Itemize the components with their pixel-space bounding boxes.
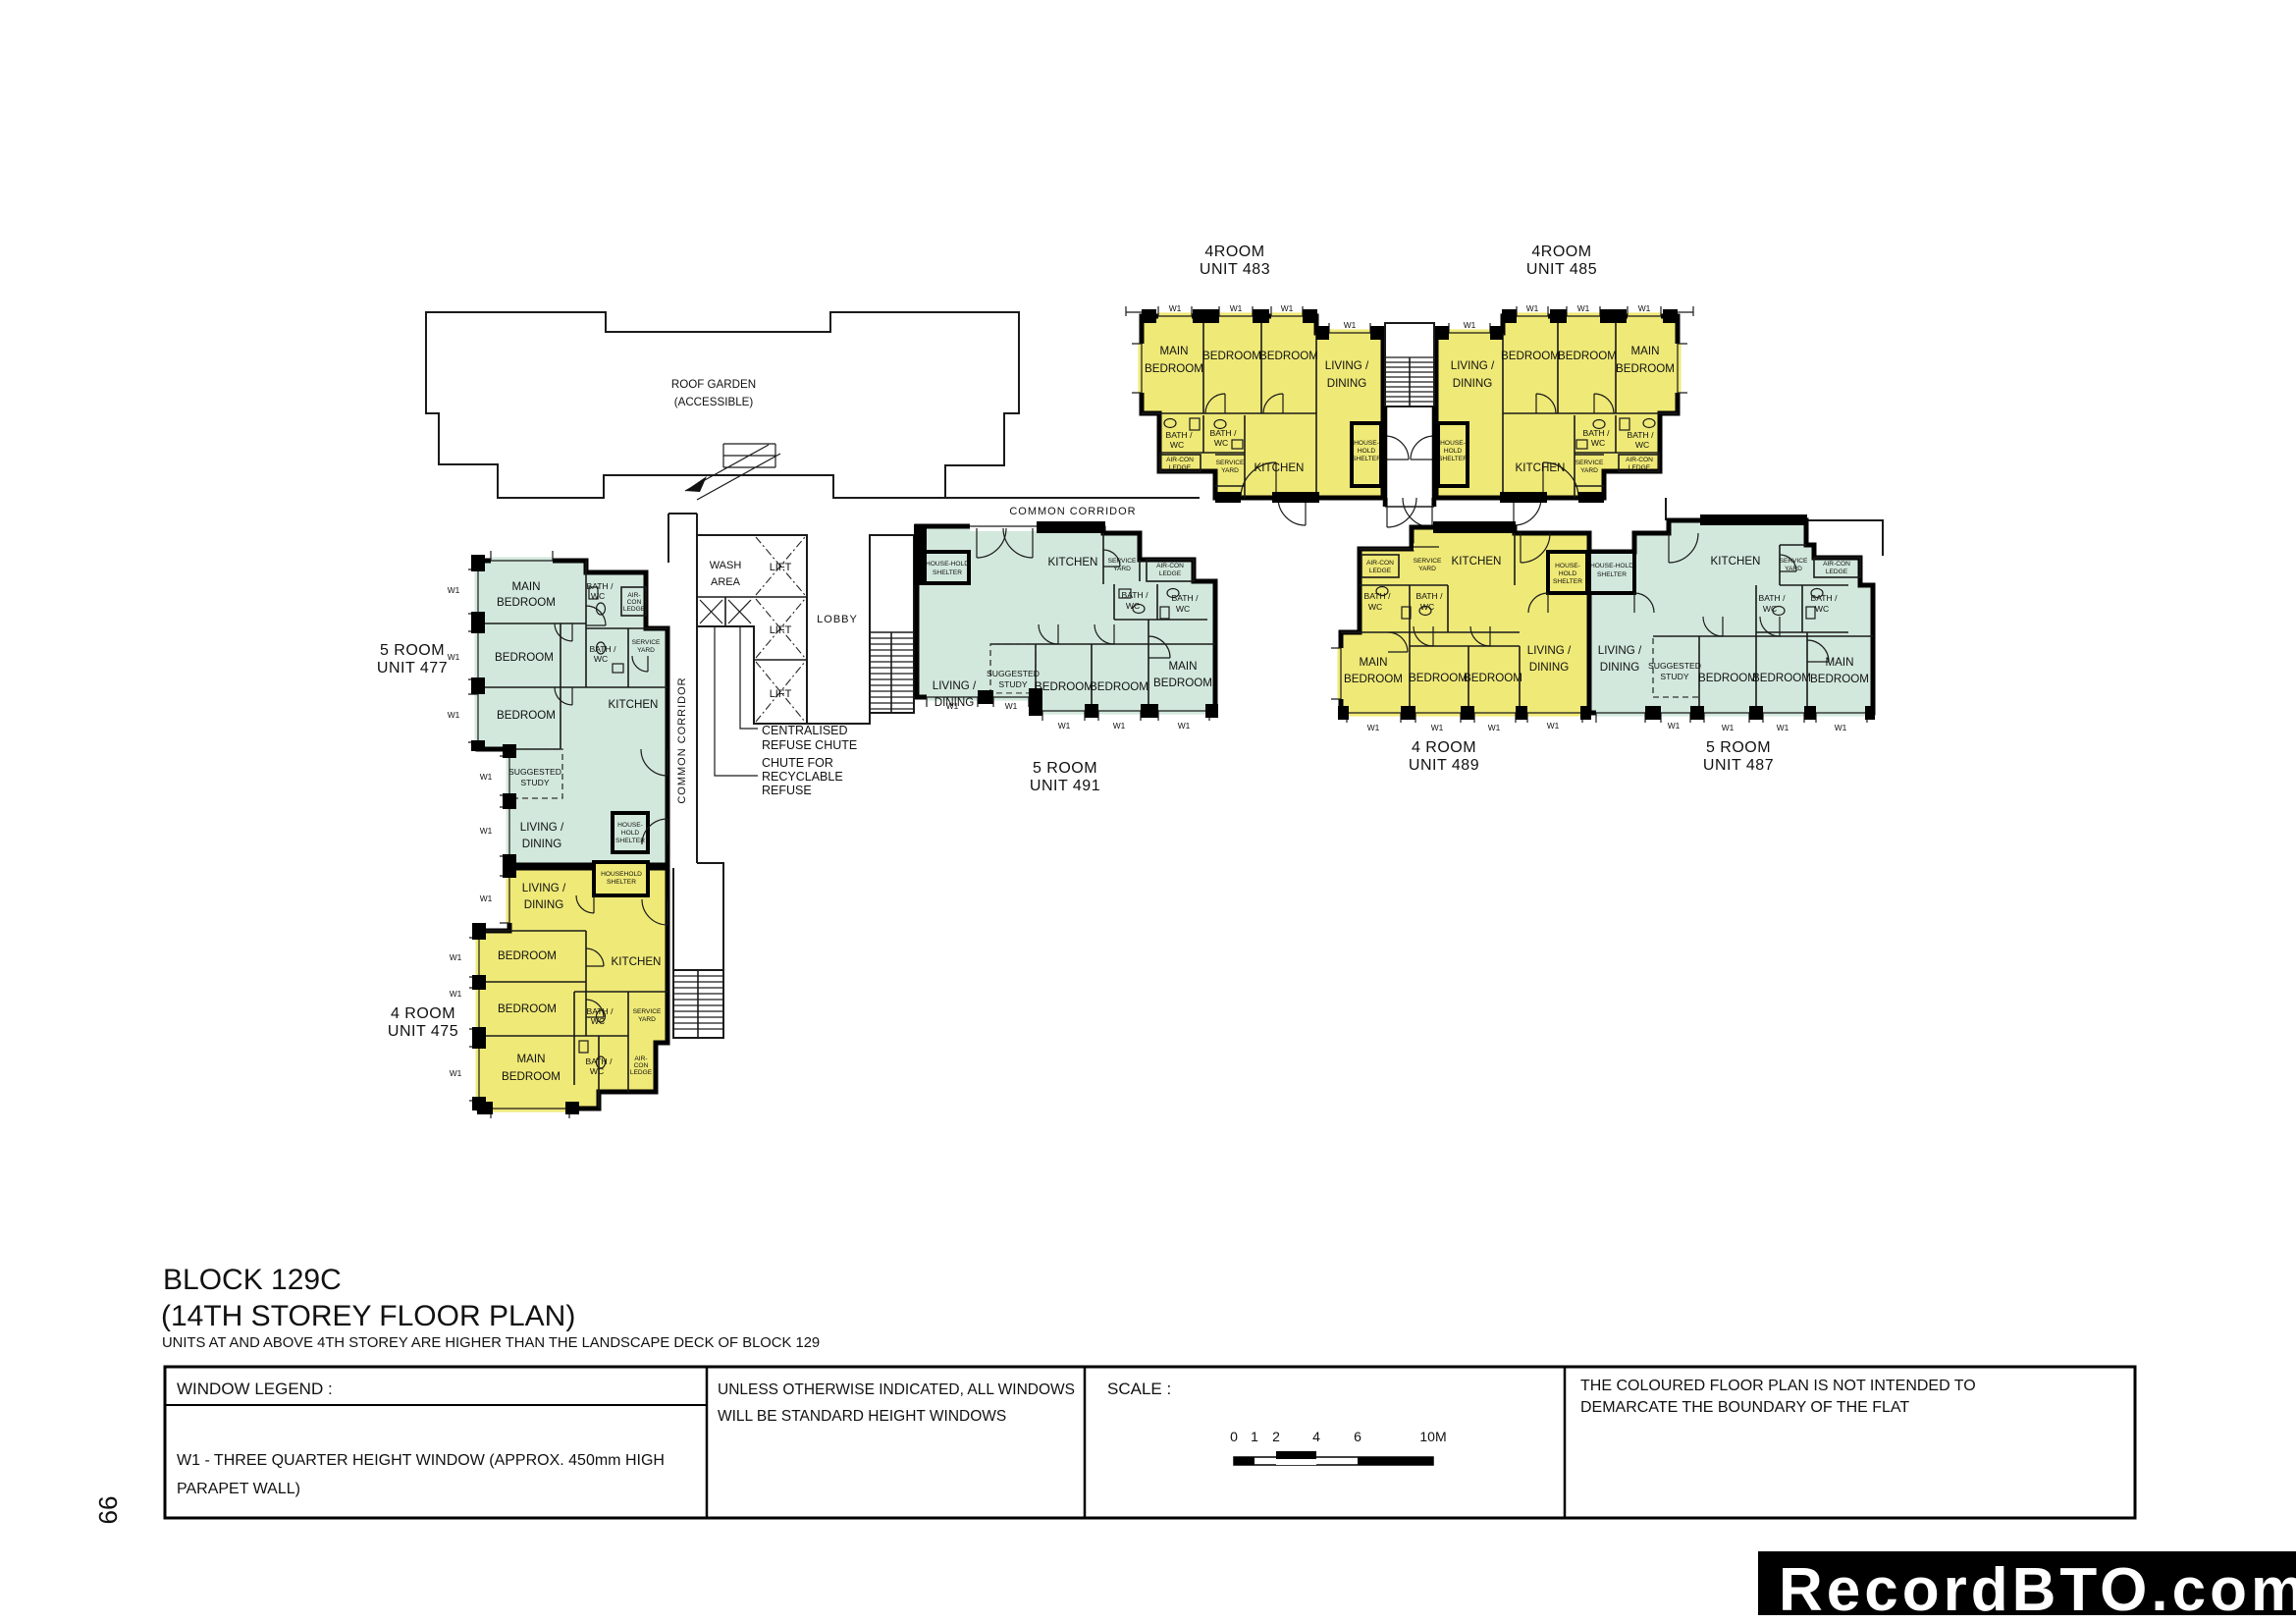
svg-text:LIVING /: LIVING / [1325,359,1369,372]
svg-text:W1: W1 [450,989,462,999]
svg-text:BEDROOM: BEDROOM [495,651,554,664]
svg-text:W1: W1 [1488,723,1501,732]
svg-text:SERVICE: SERVICE [632,639,661,646]
svg-text:BATH /: BATH / [1363,591,1391,601]
svg-text:DINING: DINING [1600,661,1640,674]
svg-text:WC: WC [594,654,608,664]
svg-text:LIFT: LIFT [770,562,792,573]
svg-text:YARD: YARD [1785,566,1802,572]
svg-text:AIR-CON: AIR-CON [1626,457,1653,463]
svg-text:BEDROOM: BEDROOM [497,596,556,609]
svg-text:SERVICE: SERVICE [1414,558,1442,565]
svg-text:BATH /: BATH / [586,581,614,591]
svg-text:WC: WC [1815,604,1829,614]
svg-text:W1: W1 [450,952,462,962]
svg-text:BEDROOM: BEDROOM [1810,673,1869,685]
svg-text:UNIT 485: UNIT 485 [1526,261,1597,278]
svg-text:(14TH STOREY FLOOR PLAN): (14TH STOREY FLOOR PLAN) [161,1300,575,1332]
svg-text:CHUTE FOR: CHUTE FOR [762,756,833,770]
svg-text:UNIT 477: UNIT 477 [377,660,448,677]
svg-text:LEDGE: LEDGE [1629,464,1651,471]
svg-text:HOUSE-: HOUSE- [617,822,643,829]
svg-text:WC: WC [1368,602,1382,612]
svg-text:4ROOM: 4ROOM [1204,244,1264,260]
svg-text:MAIN: MAIN [1169,660,1198,673]
svg-text:LIVING /: LIVING / [933,679,977,692]
svg-text:W1: W1 [450,1068,462,1078]
svg-text:HOUSE-HOLD: HOUSE-HOLD [926,561,969,568]
svg-text:6: 6 [1354,1429,1362,1444]
svg-text:THE COLOURED FLOOR PLAN IS NOT: THE COLOURED FLOOR PLAN IS NOT INTENDED … [1580,1378,1976,1394]
svg-text:5 ROOM: 5 ROOM [1033,760,1097,777]
svg-text:SERVICE: SERVICE [1780,558,1808,565]
svg-text:BEDROOM: BEDROOM [1558,350,1617,362]
svg-text:SUGGESTED: SUGGESTED [508,767,561,777]
svg-text:HOLD: HOLD [1358,448,1376,455]
svg-text:W1: W1 [1367,723,1380,732]
svg-text:HOLD: HOLD [621,830,640,837]
svg-text:UNIT 489: UNIT 489 [1409,757,1479,774]
svg-text:66: 66 [93,1496,123,1525]
svg-text:AIR-CON: AIR-CON [1366,560,1394,567]
svg-text:BEDROOM: BEDROOM [1752,672,1811,684]
svg-text:REFUSE: REFUSE [762,784,812,797]
svg-text:UNITS AT AND ABOVE 4TH STOREY: UNITS AT AND ABOVE 4TH STOREY ARE HIGHER… [162,1335,820,1351]
svg-text:0: 0 [1230,1429,1238,1444]
svg-text:LEDGE: LEDGE [1169,464,1192,471]
svg-text:1: 1 [1251,1429,1258,1444]
svg-text:PARAPET WALL): PARAPET WALL) [177,1481,300,1497]
svg-text:AIR-: AIR- [634,1056,647,1062]
svg-text:AIR-CON: AIR-CON [1166,457,1194,463]
svg-text:DEMARCATE THE BOUNDARY OF THE: DEMARCATE THE BOUNDARY OF THE FLAT [1580,1399,1909,1416]
svg-text:HOLD: HOLD [1444,448,1463,455]
svg-text:BEDROOM: BEDROOM [498,1002,557,1015]
svg-text:WASH: WASH [710,560,742,571]
svg-text:YARD: YARD [637,647,655,654]
svg-text:SUGGESTED: SUGGESTED [987,669,1040,678]
svg-text:DINING: DINING [1529,661,1570,674]
svg-text:DINING: DINING [1327,377,1367,390]
svg-text:YARD: YARD [1113,566,1131,572]
svg-text:W1: W1 [1777,723,1789,732]
svg-text:BEDROOM: BEDROOM [1145,362,1203,375]
svg-text:SHELTER: SHELTER [933,569,962,576]
svg-text:W1: W1 [480,893,493,903]
svg-text:RECYCLABLE: RECYCLABLE [762,770,843,784]
svg-text:LIFT: LIFT [770,624,792,636]
svg-text:W1: W1 [448,585,460,595]
svg-text:BEDROOM: BEDROOM [498,949,557,962]
svg-text:LEDGE: LEDGE [1159,570,1182,577]
svg-text:BATH /: BATH / [586,1006,614,1016]
svg-text:LIVING /: LIVING / [1598,644,1642,657]
svg-text:CENTRALISED: CENTRALISED [762,724,848,737]
svg-text:SCALE :: SCALE : [1107,1380,1171,1398]
svg-text:W1: W1 [1638,303,1651,313]
svg-text:LOBBY: LOBBY [817,614,858,625]
svg-text:BEDROOM: BEDROOM [1409,672,1468,684]
svg-text:BEDROOM: BEDROOM [1344,673,1403,685]
svg-text:WC: WC [1176,604,1190,614]
svg-text:W1: W1 [1526,303,1539,313]
svg-text:BEDROOM: BEDROOM [1202,350,1261,362]
svg-text:BATH /: BATH / [1582,428,1610,438]
svg-text:SHELTER: SHELTER [1597,571,1627,578]
svg-text:W1: W1 [1113,721,1126,731]
svg-text:5 ROOM: 5 ROOM [1706,739,1771,756]
svg-text:LIVING /: LIVING / [522,882,566,894]
svg-text:W1: W1 [1169,303,1182,313]
svg-text:COMMON CORRIDOR: COMMON CORRIDOR [676,677,688,803]
svg-text:WILL BE STANDARD HEIGHT WINDOW: WILL BE STANDARD HEIGHT WINDOWS [718,1408,1006,1425]
svg-text:CON: CON [634,1062,649,1069]
svg-text:W1: W1 [1281,303,1294,313]
svg-text:SHELTER: SHELTER [1553,578,1582,585]
svg-text:BEDROOM: BEDROOM [1464,672,1522,684]
svg-text:BEDROOM: BEDROOM [1501,350,1560,362]
svg-text:YARD: YARD [1221,467,1239,474]
svg-text:4: 4 [1312,1429,1320,1444]
svg-text:W1: W1 [480,772,493,782]
svg-text:WC: WC [590,1066,604,1076]
svg-text:W1: W1 [448,710,460,720]
svg-text:KITCHEN: KITCHEN [1048,556,1098,568]
svg-text:BEDROOM: BEDROOM [1616,362,1675,375]
svg-text:HOUSE-: HOUSE- [1354,440,1379,447]
svg-text:UNIT 487: UNIT 487 [1703,757,1774,774]
svg-text:HOUSE-HOLD: HOUSE-HOLD [1590,563,1633,569]
svg-text:MAIN: MAIN [517,1053,546,1065]
svg-text:SERVICE: SERVICE [1575,460,1604,466]
svg-text:SHELTER: SHELTER [615,838,645,844]
svg-text:SERVICE: SERVICE [633,1008,662,1015]
svg-text:W1: W1 [1668,721,1681,731]
svg-text:DINING: DINING [1453,377,1493,390]
svg-text:SHELTER: SHELTER [1438,456,1468,462]
svg-text:HOUSEHOLD: HOUSEHOLD [601,871,642,878]
svg-text:BEDROOM: BEDROOM [1259,350,1318,362]
svg-text:MAIN: MAIN [512,580,541,593]
svg-text:UNIT 475: UNIT 475 [388,1023,458,1040]
svg-text:REFUSE CHUTE: REFUSE CHUTE [762,738,857,752]
svg-text:W1: W1 [1577,303,1590,313]
svg-text:BLOCK 129C: BLOCK 129C [163,1264,342,1296]
svg-text:WINDOW LEGEND :: WINDOW LEGEND : [177,1380,333,1398]
svg-text:W1: W1 [1344,320,1357,330]
svg-text:BATH /: BATH / [1121,590,1148,600]
svg-text:MAIN: MAIN [1360,656,1388,669]
svg-text:W1: W1 [1547,721,1560,731]
svg-text:YARD: YARD [1418,566,1436,572]
svg-text:WC: WC [591,1016,605,1026]
svg-text:W1: W1 [1005,701,1018,711]
svg-text:LEDGE: LEDGE [630,1069,653,1076]
svg-text:WC: WC [591,591,605,601]
svg-text:LIVING /: LIVING / [1451,359,1495,372]
svg-text:COMMON CORRIDOR: COMMON CORRIDOR [1009,506,1136,517]
svg-text:W1: W1 [1178,721,1191,731]
svg-text:BEDROOM: BEDROOM [1035,680,1094,693]
svg-text:HOUSE-: HOUSE- [1440,440,1466,447]
svg-text:WC: WC [1214,438,1228,448]
svg-text:W1 - THREE QUARTER HEIGHT WIND: W1 - THREE QUARTER HEIGHT WINDOW (APPROX… [177,1452,665,1469]
svg-text:BATH /: BATH / [1171,593,1199,603]
svg-text:SERVICE: SERVICE [1216,460,1245,466]
svg-text:WC: WC [1170,440,1184,450]
svg-text:LIVING /: LIVING / [1527,644,1572,657]
svg-text:KITCHEN: KITCHEN [1255,461,1305,474]
svg-text:WC: WC [1591,438,1605,448]
svg-text:LEDGE: LEDGE [623,606,646,613]
svg-text:MAIN: MAIN [1826,656,1854,669]
svg-text:W1: W1 [1835,723,1847,732]
svg-text:RecordBTO.com: RecordBTO.com [1779,1556,2296,1624]
svg-text:BEDROOM: BEDROOM [497,709,556,722]
svg-text:W1: W1 [1464,320,1476,330]
svg-text:W1: W1 [448,652,460,662]
svg-text:DINING: DINING [522,838,562,850]
svg-text:BATH /: BATH / [1165,430,1193,440]
svg-text:BATH /: BATH / [1810,593,1838,603]
svg-text:AIR-: AIR- [627,592,640,599]
svg-text:SHELTER: SHELTER [1352,456,1381,462]
svg-text:LIFT: LIFT [770,688,792,700]
svg-text:DINING: DINING [524,898,564,911]
svg-text:CON: CON [627,599,642,606]
svg-text:4ROOM: 4ROOM [1531,244,1591,260]
svg-text:BATH /: BATH / [1415,591,1443,601]
svg-text:BATH /: BATH / [1209,428,1237,438]
svg-text:MAIN: MAIN [1160,345,1189,357]
svg-text:BEDROOM: BEDROOM [1153,677,1212,689]
svg-text:LEDGE: LEDGE [1826,568,1848,575]
svg-text:10M: 10M [1419,1429,1446,1444]
svg-text:BATH /: BATH / [589,644,616,654]
svg-text:YARD: YARD [638,1016,656,1023]
svg-text:HOLD: HOLD [1559,570,1577,577]
svg-text:W1: W1 [1230,303,1243,313]
svg-text:MAIN: MAIN [1631,345,1660,357]
svg-text:(ACCESSIBLE): (ACCESSIBLE) [674,396,754,408]
svg-text:WC: WC [1635,440,1649,450]
svg-text:SUGGESTED: SUGGESTED [1648,661,1701,671]
svg-text:5 ROOM: 5 ROOM [380,642,445,659]
svg-text:UNLESS OTHERWISE INDICATED, AL: UNLESS OTHERWISE INDICATED, ALL WINDOWS [718,1381,1075,1398]
svg-text:W1: W1 [1058,721,1071,731]
svg-text:BATH /: BATH / [1758,593,1786,603]
svg-text:STUDY: STUDY [998,679,1027,689]
svg-text:UNIT 491: UNIT 491 [1030,778,1100,794]
svg-text:W1: W1 [1722,723,1735,732]
svg-text:AIR-CON: AIR-CON [1156,563,1184,569]
svg-text:4 ROOM: 4 ROOM [391,1005,455,1022]
svg-text:LEDGE: LEDGE [1369,568,1392,574]
svg-text:2: 2 [1272,1429,1280,1444]
svg-text:BEDROOM: BEDROOM [502,1070,561,1083]
svg-text:STUDY: STUDY [1660,672,1688,681]
svg-text:AIR-CON: AIR-CON [1823,561,1850,568]
svg-text:KITCHEN: KITCHEN [609,698,659,711]
svg-text:WC: WC [1420,602,1434,612]
svg-text:BATH /: BATH / [585,1056,613,1066]
svg-text:HOUSE-: HOUSE- [1555,563,1580,569]
svg-text:4 ROOM: 4 ROOM [1412,739,1476,756]
svg-text:UNIT 483: UNIT 483 [1200,261,1270,278]
svg-text:AREA: AREA [711,576,741,588]
svg-text:SERVICE: SERVICE [1108,558,1137,565]
svg-text:BATH /: BATH / [1627,430,1654,440]
svg-text:BEDROOM: BEDROOM [1698,672,1757,684]
svg-text:WC: WC [1763,604,1777,614]
svg-text:KITCHEN: KITCHEN [1452,555,1502,568]
svg-text:ROOF GARDEN: ROOF GARDEN [671,378,756,391]
svg-text:LIVING /: LIVING / [520,821,564,834]
svg-text:KITCHEN: KITCHEN [1516,461,1566,474]
svg-text:W1: W1 [1431,723,1444,732]
svg-text:STUDY: STUDY [520,778,549,787]
svg-text:W1: W1 [480,826,493,836]
svg-text:KITCHEN: KITCHEN [612,955,662,968]
svg-text:KITCHEN: KITCHEN [1711,555,1761,568]
svg-text:YARD: YARD [1580,467,1598,474]
svg-text:W1: W1 [946,701,959,711]
svg-text:SHELTER: SHELTER [607,879,636,886]
svg-text:WC: WC [1126,601,1140,611]
svg-text:BEDROOM: BEDROOM [1090,680,1148,693]
